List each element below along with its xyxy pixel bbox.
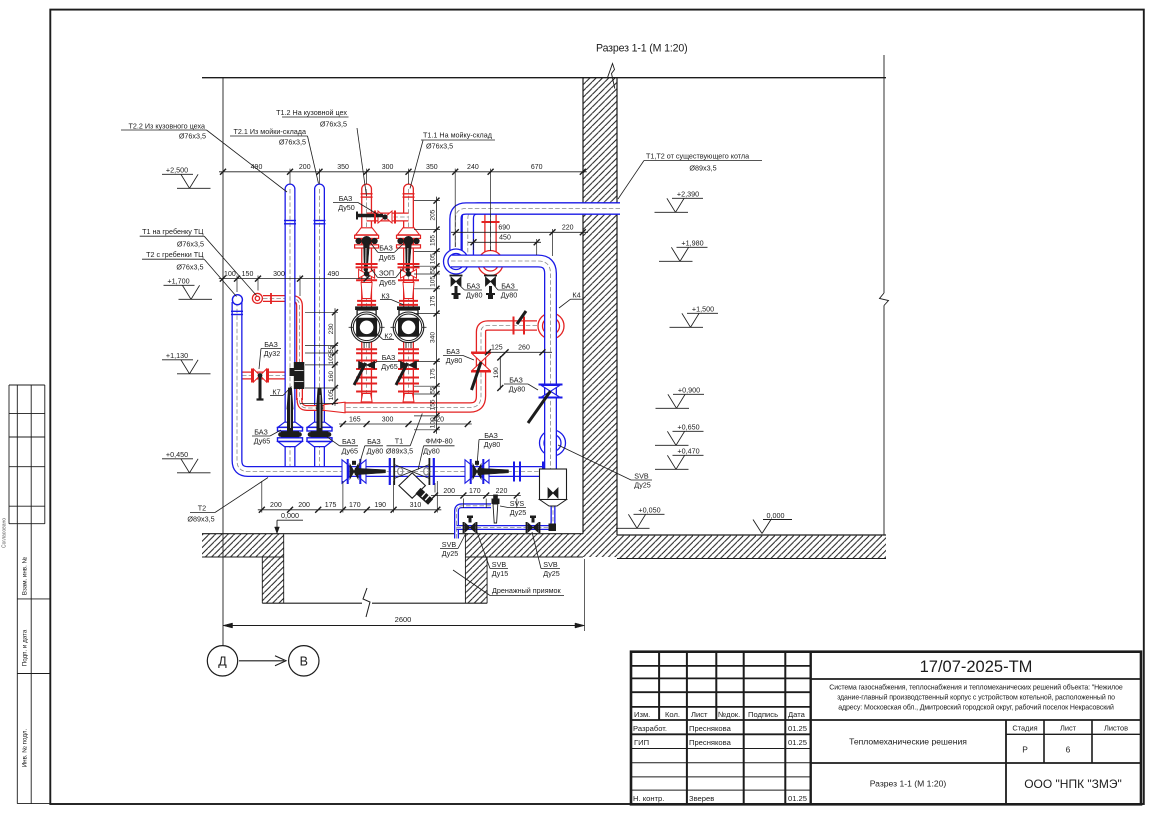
svg-text:SVB: SVB xyxy=(492,560,507,569)
svg-text:Т1 на гребенку ТЦ: Т1 на гребенку ТЦ xyxy=(142,227,204,236)
svg-text:300: 300 xyxy=(382,416,394,423)
svg-text:Изм.: Изм. xyxy=(634,710,650,719)
svg-text:105: 105 xyxy=(328,389,335,400)
svg-text:Ду80: Ду80 xyxy=(466,291,483,300)
svg-text:200: 200 xyxy=(270,502,282,509)
svg-text:Взам. инв. №: Взам. инв. № xyxy=(22,556,29,595)
svg-text:0,000: 0,000 xyxy=(767,511,785,520)
svg-text:БАЗ: БАЗ xyxy=(446,347,460,356)
svg-text:Т2.2 Из кузовного цеха: Т2.2 Из кузовного цеха xyxy=(129,121,206,130)
svg-text:240: 240 xyxy=(467,164,479,171)
svg-text:55: 55 xyxy=(328,345,335,353)
svg-text:Преснякова: Преснякова xyxy=(689,724,732,733)
svg-text:Ду65: Ду65 xyxy=(381,362,398,371)
svg-text:420: 420 xyxy=(432,416,444,423)
svg-text:Ду80: Ду80 xyxy=(484,440,501,449)
svg-text:Ø89х3,5: Ø89х3,5 xyxy=(187,515,214,524)
svg-text:ЗОП: ЗОП xyxy=(379,268,394,277)
svg-text:300: 300 xyxy=(273,271,285,278)
svg-text:Ду80: Ду80 xyxy=(509,385,526,394)
svg-text:№док.: №док. xyxy=(718,710,740,719)
svg-text:Ду25: Ду25 xyxy=(442,549,459,558)
svg-text:БАЗ: БАЗ xyxy=(342,437,356,446)
svg-text:Разрез 1-1 (М 1:20): Разрез 1-1 (М 1:20) xyxy=(870,779,947,789)
svg-text:SVS: SVS xyxy=(510,499,525,508)
svg-text:175: 175 xyxy=(429,368,436,379)
svg-text:17/07-2025-ТМ: 17/07-2025-ТМ xyxy=(920,658,1033,676)
svg-text:Согласовано: Согласовано xyxy=(2,518,8,548)
svg-text:200: 200 xyxy=(443,488,455,495)
svg-text:БАЗ: БАЗ xyxy=(382,353,396,362)
svg-text:200: 200 xyxy=(299,164,311,171)
svg-text:Ø76х3,5: Ø76х3,5 xyxy=(320,120,347,129)
svg-text:Т1: Т1 xyxy=(395,437,403,446)
svg-text:190: 190 xyxy=(374,502,386,509)
svg-text:Ду80: Ду80 xyxy=(446,356,463,365)
svg-text:490: 490 xyxy=(327,271,339,278)
svg-text:адресу: Московская обл., Дмитр: адресу: Московская обл., Дмитровский гор… xyxy=(838,704,1114,712)
svg-text:Ø76х3,5: Ø76х3,5 xyxy=(426,142,453,151)
svg-text:160: 160 xyxy=(328,371,335,382)
svg-text:01.25: 01.25 xyxy=(788,738,807,747)
svg-text:Тепломеханические решения: Тепломеханические решения xyxy=(849,737,967,747)
svg-text:Ду65: Ду65 xyxy=(341,446,358,455)
svg-text:+1,980: +1,980 xyxy=(681,239,703,248)
svg-text:Ду80: Ду80 xyxy=(367,446,384,455)
svg-text:+0,050: +0,050 xyxy=(638,506,660,515)
svg-text:230: 230 xyxy=(328,323,335,334)
svg-text:350: 350 xyxy=(337,164,349,171)
svg-text:Ø76х3,5: Ø76х3,5 xyxy=(177,240,204,249)
svg-text:300: 300 xyxy=(382,164,394,171)
svg-text:Подпись: Подпись xyxy=(748,710,778,719)
svg-text:55: 55 xyxy=(429,386,436,394)
svg-text:175: 175 xyxy=(325,502,337,509)
svg-text:Д: Д xyxy=(218,654,227,668)
svg-text:+1,130: +1,130 xyxy=(166,351,188,360)
svg-text:К4: К4 xyxy=(572,291,580,300)
svg-text:ООО "НПК "ЗМЭ": ООО "НПК "ЗМЭ" xyxy=(1024,777,1122,791)
svg-text:155: 155 xyxy=(429,399,436,410)
svg-text:150: 150 xyxy=(242,271,254,278)
svg-text:+0,450: +0,450 xyxy=(166,450,188,459)
svg-text:БАЗ: БАЗ xyxy=(466,281,480,290)
svg-text:Стадия: Стадия xyxy=(1012,724,1037,733)
svg-text:Ду65: Ду65 xyxy=(379,278,396,287)
svg-text:SVB: SVB xyxy=(543,560,558,569)
svg-text:Ø89х3,5: Ø89х3,5 xyxy=(386,447,413,456)
svg-text:125: 125 xyxy=(491,345,503,352)
svg-text:Т1.1 На мойку-склад: Т1.1 На мойку-склад xyxy=(423,131,493,140)
svg-text:Н. контр.: Н. контр. xyxy=(633,794,664,803)
svg-text:Ду80: Ду80 xyxy=(423,447,440,456)
svg-text:55: 55 xyxy=(429,266,436,274)
svg-text:Ду32: Ду32 xyxy=(264,349,281,358)
svg-text:670: 670 xyxy=(531,164,543,171)
svg-text:690: 690 xyxy=(498,225,510,232)
svg-text:БАЗ: БАЗ xyxy=(484,431,498,440)
svg-text:350: 350 xyxy=(426,164,438,171)
svg-text:Листов: Листов xyxy=(1104,724,1128,733)
svg-text:+0,650: +0,650 xyxy=(677,423,699,432)
svg-text:Лист: Лист xyxy=(691,710,708,719)
svg-text:220: 220 xyxy=(562,225,574,232)
svg-text:Кол.: Кол. xyxy=(665,710,680,719)
svg-text:Ø76х3,5: Ø76х3,5 xyxy=(279,138,306,147)
svg-text:105: 105 xyxy=(429,253,436,264)
svg-text:Ø76х3,5: Ø76х3,5 xyxy=(176,263,203,272)
svg-text:SVB: SVB xyxy=(634,471,649,480)
svg-text:Ø89х3,5: Ø89х3,5 xyxy=(689,164,716,173)
svg-text:+1,500: +1,500 xyxy=(692,305,714,314)
svg-text:БАЗ: БАЗ xyxy=(509,375,523,384)
svg-text:+0,900: +0,900 xyxy=(678,386,700,395)
svg-text:Р: Р xyxy=(1022,745,1028,755)
svg-text:+2,500: +2,500 xyxy=(166,166,188,175)
svg-text:450: 450 xyxy=(499,235,511,242)
svg-text:БАЗ: БАЗ xyxy=(254,427,268,436)
svg-text:+0,470: +0,470 xyxy=(677,447,699,456)
svg-text:Дата: Дата xyxy=(788,710,806,719)
svg-text:Разработ.: Разработ. xyxy=(633,724,667,733)
svg-text:БАЗ: БАЗ xyxy=(264,340,278,349)
svg-text:01.25: 01.25 xyxy=(788,724,807,733)
svg-text:205: 205 xyxy=(429,209,436,220)
svg-text:6: 6 xyxy=(1066,745,1071,755)
svg-text:Т2.1 Из мойки-склада: Т2.1 Из мойки-склада xyxy=(233,127,306,136)
svg-text:Т1,Т2 от существующего котла: Т1,Т2 от существующего котла xyxy=(646,152,749,161)
svg-text:Преснякова: Преснякова xyxy=(689,738,732,747)
svg-text:ГИП: ГИП xyxy=(634,738,649,747)
svg-text:175: 175 xyxy=(429,295,436,306)
svg-text:0,000: 0,000 xyxy=(281,511,299,520)
svg-text:01.25: 01.25 xyxy=(788,794,807,803)
svg-text:340: 340 xyxy=(429,332,436,343)
svg-text:Ду65: Ду65 xyxy=(379,253,396,262)
svg-text:105: 105 xyxy=(328,353,335,364)
svg-text:БАЗ: БАЗ xyxy=(367,437,381,446)
svg-text:БАЗ: БАЗ xyxy=(339,194,353,203)
svg-text:260: 260 xyxy=(518,345,530,352)
svg-text:Инв. № подл.: Инв. № подл. xyxy=(22,728,29,767)
svg-text:Ду50: Ду50 xyxy=(338,203,355,212)
svg-text:Ду25: Ду25 xyxy=(510,508,527,517)
svg-text:190: 190 xyxy=(493,367,500,378)
svg-text:170: 170 xyxy=(469,488,481,495)
svg-text:Лист: Лист xyxy=(1060,724,1077,733)
svg-text:170: 170 xyxy=(349,502,361,509)
svg-text:220: 220 xyxy=(496,488,508,495)
svg-text:+1,700: +1,700 xyxy=(167,277,189,286)
svg-text:БАЗ: БАЗ xyxy=(501,281,515,290)
svg-text:В: В xyxy=(300,654,308,668)
svg-text:105: 105 xyxy=(429,276,436,287)
svg-text:Т2 с гребенки ТЦ: Т2 с гребенки ТЦ xyxy=(146,250,204,259)
svg-text:Разрез 1-1 (М 1:20): Разрез 1-1 (М 1:20) xyxy=(596,42,688,54)
svg-text:Т1.2 На кузовной цех: Т1.2 На кузовной цех xyxy=(276,108,347,117)
svg-text:+2,390: +2,390 xyxy=(677,190,699,199)
svg-text:Ду25: Ду25 xyxy=(634,481,651,490)
svg-text:200: 200 xyxy=(298,502,310,509)
svg-text:Ду15: Ду15 xyxy=(492,569,509,578)
svg-text:Ø76х3,5: Ø76х3,5 xyxy=(179,132,206,141)
svg-text:165: 165 xyxy=(349,416,361,423)
svg-text:Зверев: Зверев xyxy=(689,794,714,803)
svg-text:Система газоснабжения, теплосн: Система газоснабжения, теплоснабжения и … xyxy=(829,684,1123,692)
svg-text:Дренажный приямок: Дренажный приямок xyxy=(492,586,562,595)
svg-text:Ду25: Ду25 xyxy=(543,569,560,578)
svg-text:Ду80: Ду80 xyxy=(501,291,518,300)
svg-text:2600: 2600 xyxy=(395,615,412,624)
svg-text:Т2: Т2 xyxy=(198,504,206,513)
svg-text:ФМФ-80: ФМФ-80 xyxy=(425,437,452,446)
svg-text:Подп. и дата: Подп. и дата xyxy=(22,629,29,666)
svg-text:310: 310 xyxy=(410,502,422,509)
svg-text:100: 100 xyxy=(224,271,236,278)
svg-text:здание-главный производственны: здание-главный производственный корпус с… xyxy=(837,694,1115,702)
svg-text:155: 155 xyxy=(429,235,436,246)
svg-text:Ду65: Ду65 xyxy=(254,437,271,446)
svg-text:БАЗ: БАЗ xyxy=(379,243,393,252)
svg-text:SVB: SVB xyxy=(442,540,457,549)
